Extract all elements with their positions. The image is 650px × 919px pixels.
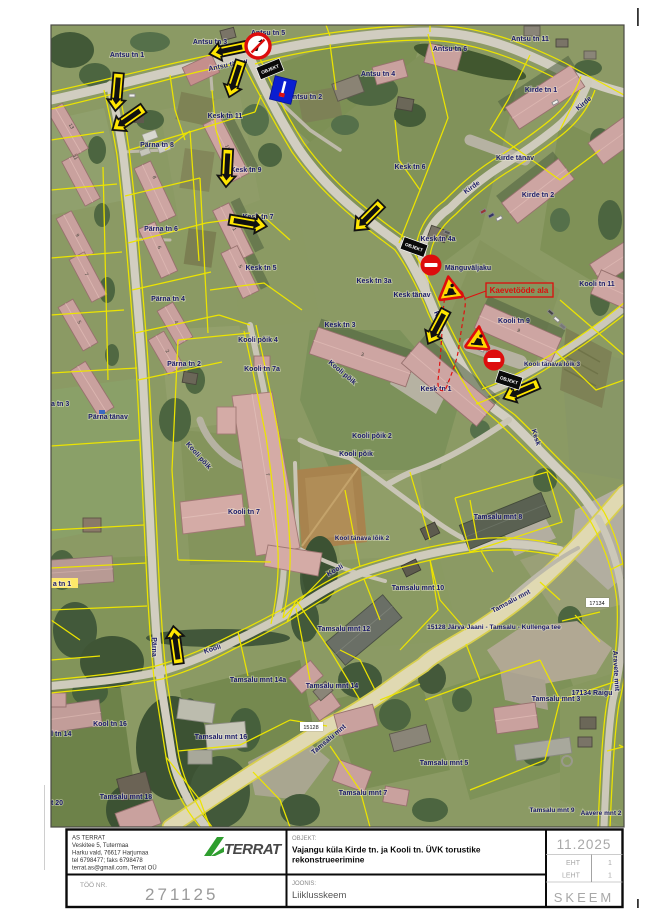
svg-text:Kesk tn 4a: Kesk tn 4a [420, 236, 455, 243]
svg-text:Tamsalu mnt 10: Tamsalu mnt 10 [392, 585, 444, 592]
svg-text:Antsu tn 3: Antsu tn 3 [193, 39, 227, 46]
svg-text:Kooli tänava lõik 3: Kooli tänava lõik 3 [524, 361, 581, 368]
svg-text:Kesk tn 3: Kesk tn 3 [324, 322, 355, 329]
svg-text:EHT: EHT [566, 860, 581, 867]
svg-text:SKEEM: SKEEM [554, 890, 615, 905]
svg-text:Kirde tn 1: Kirde tn 1 [525, 87, 557, 94]
svg-text:Pärna tn 8: Pärna tn 8 [140, 142, 174, 149]
svg-text:Kirde tn 2: Kirde tn 2 [522, 192, 554, 199]
svg-text:tel 6798477; faks 6798478: tel 6798477; faks 6798478 [72, 858, 143, 864]
svg-text:Kooli tn 11: Kooli tn 11 [579, 281, 615, 288]
svg-text:Tamsalu mnt 9: Tamsalu mnt 9 [529, 807, 574, 814]
svg-text:15128 Järva-Jaani - Tamsalu -: 15128 Järva-Jaani - Tamsalu - Kullenga t… [427, 624, 561, 631]
svg-text:Pärna: Pärna [150, 637, 157, 657]
svg-text:1: 1 [608, 860, 612, 867]
svg-text:Kaevetööde ala: Kaevetööde ala [490, 286, 549, 295]
svg-text:Tamsalu mnt 18: Tamsalu mnt 18 [100, 794, 152, 801]
svg-text:Tamsalu mnt 14a: Tamsalu mnt 14a [230, 677, 286, 684]
svg-text:Tamsalu mnt 3: Tamsalu mnt 3 [532, 696, 581, 703]
svg-text:Pärna tn 4: Pärna tn 4 [151, 296, 185, 303]
svg-text:Kooli põik 4: Kooli põik 4 [238, 337, 278, 344]
svg-text:Tamsalu mnt 16: Tamsalu mnt 16 [195, 734, 247, 741]
svg-text:15128: 15128 [303, 725, 318, 731]
svg-text:Antsu tn 4: Antsu tn 4 [361, 71, 395, 78]
svg-text:Kooli tn 7: Kooli tn 7 [228, 509, 260, 516]
svg-text:TÖÖ NR.: TÖÖ NR. [80, 881, 107, 889]
svg-text:Kesk tn 11: Kesk tn 11 [208, 113, 243, 120]
svg-text:Kooli põik: Kooli põik [339, 451, 373, 458]
svg-text:1: 1 [608, 873, 612, 880]
svg-text:rekonstrueerimine: rekonstrueerimine [292, 855, 365, 865]
svg-text:Kesk tn 3a: Kesk tn 3a [356, 278, 391, 285]
svg-text:JOONIS:: JOONIS: [292, 881, 316, 887]
svg-text:Antsu tn 1: Antsu tn 1 [110, 52, 144, 59]
svg-text:Harku vald, 76617 Harjumaa: Harku vald, 76617 Harjumaa [72, 851, 149, 857]
svg-text:17134 Raigu: 17134 Raigu [572, 690, 613, 697]
svg-text:Tamsalu mnt 12: Tamsalu mnt 12 [318, 626, 370, 633]
svg-text:Tamsalu mnt 8: Tamsalu mnt 8 [474, 514, 523, 521]
svg-text:271125: 271125 [145, 885, 218, 904]
svg-text:Kirde tänav: Kirde tänav [496, 155, 534, 162]
svg-text:Antsu tn 11: Antsu tn 11 [511, 36, 549, 43]
svg-text:Pärna tänav: Pärna tänav [88, 414, 128, 421]
svg-text:Pärna tn 6: Pärna tn 6 [144, 226, 178, 233]
svg-text:a tn 1: a tn 1 [53, 581, 71, 588]
svg-text:Vajangu küla Kirde tn. ja Kool: Vajangu küla Kirde tn. ja Kooli tn. ÜVK … [292, 845, 481, 855]
svg-text:Tamsalu mnt 5: Tamsalu mnt 5 [420, 760, 469, 767]
svg-text:Kool tänava lõik 2: Kool tänava lõik 2 [335, 535, 390, 542]
svg-text:Veskitee 5, Tutermaa: Veskitee 5, Tutermaa [72, 843, 129, 849]
svg-text:Tamsalu mnt 14: Tamsalu mnt 14 [306, 683, 358, 690]
svg-text:Mänguväljaku: Mänguväljaku [445, 265, 491, 272]
svg-text:terrat.as@gmail.com, Terrat OÜ: terrat.as@gmail.com, Terrat OÜ [72, 865, 157, 872]
svg-text:Kesk tn 6: Kesk tn 6 [394, 164, 425, 171]
svg-text:17134: 17134 [589, 601, 604, 607]
svg-text:Antsu tn 6: Antsu tn 6 [433, 46, 467, 53]
svg-text:Liiklusskeem: Liiklusskeem [292, 890, 346, 901]
svg-text:AS TERRAT: AS TERRAT [72, 836, 105, 842]
svg-text:Kesk tänav: Kesk tänav [394, 292, 431, 299]
svg-text:LEHT: LEHT [562, 873, 581, 880]
svg-text:t 20: t 20 [51, 800, 63, 807]
svg-text:OBJEKT:: OBJEKT: [292, 836, 317, 842]
svg-text:Tamsalu mnt 7: Tamsalu mnt 7 [339, 790, 388, 797]
svg-text:Kesk tn 5: Kesk tn 5 [245, 265, 276, 272]
svg-text:Kooli tn 9: Kooli tn 9 [498, 318, 530, 325]
svg-text:TERRAT: TERRAT [224, 841, 283, 858]
svg-text:Kooli põik 2: Kooli põik 2 [352, 433, 392, 440]
svg-text:Kooli tn 7a: Kooli tn 7a [244, 366, 280, 373]
svg-text:Kool tn 16: Kool tn 16 [93, 721, 127, 728]
svg-text:Pärna tn 2: Pärna tn 2 [167, 361, 201, 368]
svg-text:11.2025: 11.2025 [557, 837, 612, 852]
svg-text:Aavere mnt 2: Aavere mnt 2 [581, 810, 622, 817]
svg-text:Kesk tn 9: Kesk tn 9 [230, 167, 261, 174]
